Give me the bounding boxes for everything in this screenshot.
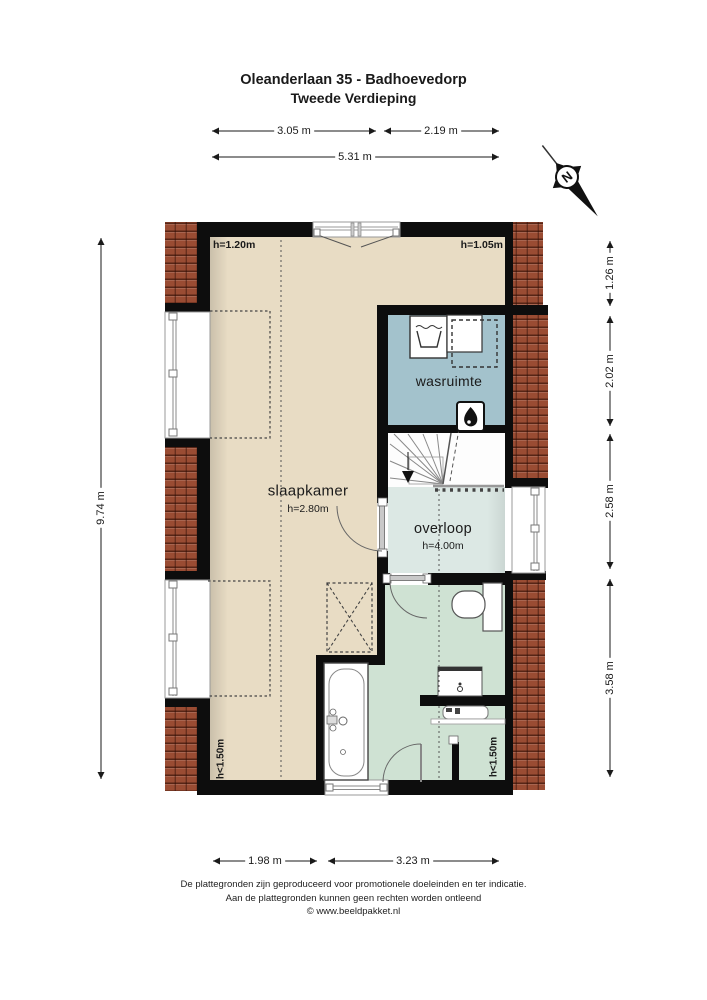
window-bottom (325, 780, 388, 795)
roof-tiles-left-bottom (165, 707, 200, 791)
dim-right-seg2: 2.02 m (604, 351, 616, 391)
footer-line2: Aan de plattegronden kunnen geen rechten… (0, 892, 707, 906)
floorplan-page: Oleanderlaan 35 - Badhoevedorp Tweede Ve… (0, 0, 707, 1000)
dim-top-seg2: 2.19 m (421, 125, 461, 137)
dim-right-seg1: 1.26 m (604, 253, 616, 293)
height-note-top-right: h=1.05m (461, 239, 503, 251)
vanity-sink (438, 667, 482, 696)
roof-tiles-right-mid (513, 315, 548, 478)
height-note-top-left: h=1.20m (213, 239, 255, 251)
dim-right-seg4: 3.58 m (604, 658, 616, 698)
room-height-overloop: h=4.00m (422, 540, 463, 552)
bathtub-faucet-icon (327, 716, 337, 724)
bathtub (324, 663, 368, 780)
window-right-overloop (512, 487, 545, 573)
dim-right-seg3: 2.58 m (604, 481, 616, 521)
bathtub-drain (341, 750, 346, 755)
room-height-slaapkamer: h=2.80m (287, 503, 328, 515)
height-note-bottom-right: h<1.50m (489, 737, 500, 777)
washing-machine-icon (410, 316, 447, 358)
boiler-flame-icon (457, 402, 484, 431)
floor-shading-left (210, 237, 228, 780)
dim-top-total: 5.31 m (335, 151, 375, 163)
room-label-wasruimte: wasruimte (416, 373, 483, 389)
room-label-overloop: overloop (414, 521, 472, 537)
room-label-slaapkamer: slaapkamer (268, 483, 349, 500)
footer-disclaimer: De plattegronden zijn geproduceerd voor … (0, 878, 707, 919)
window-left-upper (165, 312, 210, 438)
floor-shading-overloop (487, 487, 505, 573)
dim-left-total: 9.74 m (95, 488, 107, 528)
roof-tiles-right-bottom (510, 580, 545, 790)
window-left-lower (165, 580, 210, 698)
compass-north-icon: N (528, 134, 612, 227)
height-note-bottom-left: h<1.50m (216, 739, 227, 779)
roof-tiles-right-top (512, 222, 543, 305)
roof-tiles-left-mid (165, 447, 197, 571)
roof-tiles-left-top (165, 222, 197, 303)
footer-line1: De plattegronden zijn geproduceerd voor … (0, 878, 707, 892)
footer-copyright: © www.beeldpakket.nl (0, 905, 707, 919)
dim-bottom-seg2: 3.23 m (393, 855, 433, 867)
dim-top-seg1: 3.05 m (274, 125, 314, 137)
dim-bottom-seg1: 1.98 m (245, 855, 285, 867)
